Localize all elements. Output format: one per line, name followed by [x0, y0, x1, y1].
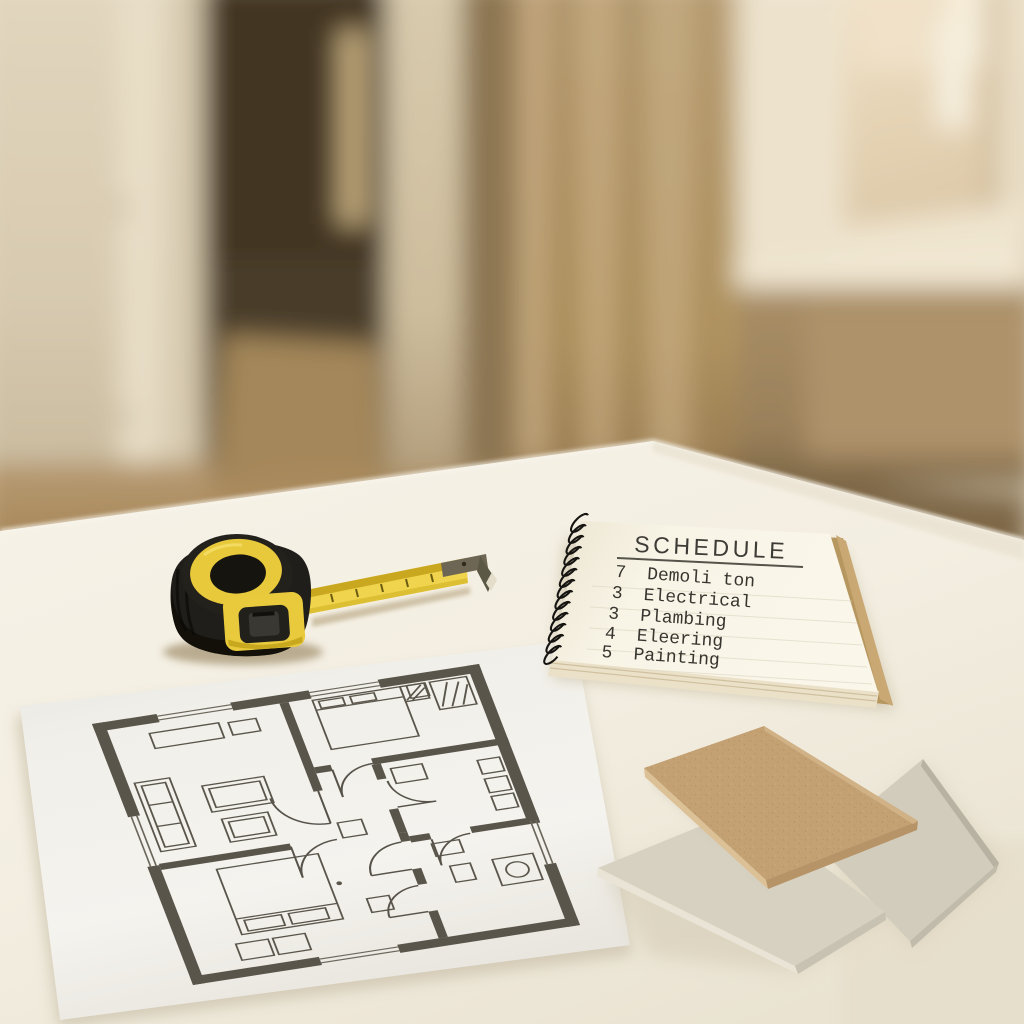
svg-text:5: 5 — [601, 643, 613, 664]
svg-text:3: 3 — [611, 584, 623, 605]
svg-text:4: 4 — [604, 624, 616, 645]
svg-text:3: 3 — [608, 604, 620, 625]
svg-text:7: 7 — [615, 563, 627, 584]
